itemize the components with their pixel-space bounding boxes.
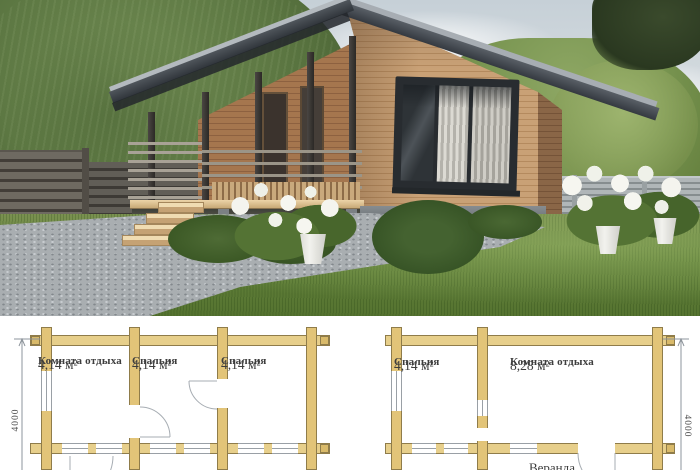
door-opening [216, 379, 229, 408]
porch-step [122, 235, 174, 246]
house-photo [0, 0, 700, 316]
porch-railing [128, 142, 202, 200]
door-opening [476, 428, 489, 441]
room-area: 4,14 м² [38, 357, 78, 373]
window-symbol [150, 443, 176, 454]
top-wall-beam [385, 335, 675, 346]
beam-end-cap [666, 444, 675, 453]
gable-window [392, 76, 519, 191]
project-image: 4000 Комната отдыха 4,14 м² Спальня 4,14… [0, 0, 700, 470]
window-symbol [477, 400, 488, 416]
beam-end-cap [320, 444, 329, 453]
window-symbol [444, 443, 468, 454]
wall-post [652, 327, 663, 470]
veranda-label: Веранда [509, 460, 595, 470]
bush [372, 200, 484, 274]
window-symbol [412, 443, 436, 454]
window-symbol [96, 443, 122, 454]
wall-post [306, 327, 317, 470]
beam-end-cap [31, 336, 40, 345]
room-area: 4,14 м² [394, 358, 434, 374]
window-symbol [62, 443, 88, 454]
window-symbol [238, 443, 264, 454]
partition-post [129, 327, 140, 470]
porch-step [158, 202, 204, 213]
room-area: 4,14 м² [132, 357, 172, 373]
room-area: 4,14 м² [221, 357, 261, 373]
window-symbol [272, 443, 298, 454]
door-opening [578, 443, 615, 454]
pine-branch [592, 0, 700, 70]
bush [468, 205, 542, 239]
window-symbol [41, 371, 52, 411]
beam-end-cap [666, 336, 675, 345]
flower-cluster [540, 156, 700, 254]
door-opening [128, 405, 141, 438]
beam-end-cap [320, 336, 329, 345]
window-symbol [184, 443, 210, 454]
flower-cluster [205, 168, 365, 268]
window-symbol [391, 371, 402, 411]
dimension-arrow [678, 339, 684, 346]
dimension-label: 4000 [11, 400, 23, 440]
window-shadow [403, 85, 512, 110]
window-symbol [510, 443, 537, 454]
top-wall-beam [30, 335, 330, 346]
room-area: 8,28 м² [510, 358, 550, 374]
partition-post [477, 327, 488, 470]
dimension-label: 4000 [680, 406, 692, 446]
